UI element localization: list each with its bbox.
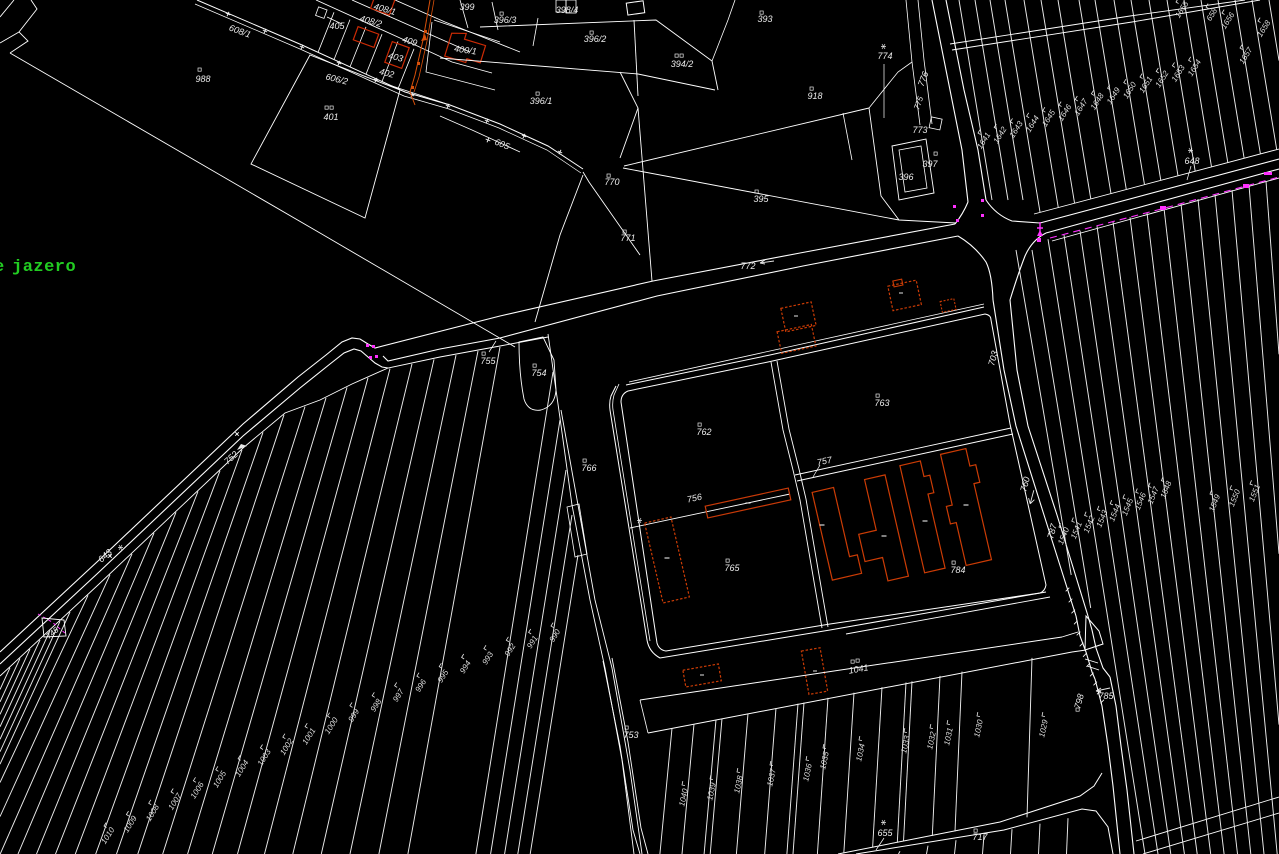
svg-text:397: 397 (922, 159, 938, 169)
svg-text:771: 771 (620, 233, 635, 243)
svg-text:773: 773 (912, 125, 927, 135)
svg-text:396/1: 396/1 (530, 96, 553, 106)
svg-text:399: 399 (459, 2, 474, 12)
svg-text:785: 785 (1098, 691, 1114, 701)
svg-text:918: 918 (807, 91, 822, 101)
svg-text:396/2: 396/2 (584, 34, 607, 44)
svg-text:396: 396 (898, 172, 913, 182)
svg-text:762: 762 (696, 427, 711, 437)
svg-text:772: 772 (740, 261, 755, 271)
svg-text:394/2: 394/2 (671, 59, 694, 69)
svg-text:717: 717 (972, 832, 988, 842)
svg-text:jazero: jazero (12, 258, 76, 277)
svg-text:988: 988 (195, 74, 210, 84)
svg-text:e: e (0, 258, 4, 277)
svg-text:405: 405 (329, 21, 345, 31)
svg-text:648: 648 (1184, 156, 1199, 166)
svg-text:774: 774 (877, 51, 892, 61)
svg-text:655: 655 (877, 828, 893, 838)
svg-text:763: 763 (874, 398, 889, 408)
svg-text:396/3: 396/3 (494, 15, 517, 25)
svg-text:784: 784 (950, 565, 965, 575)
svg-text:395: 395 (753, 194, 769, 204)
svg-text:393: 393 (757, 14, 772, 24)
svg-text:755: 755 (480, 356, 496, 366)
svg-text:398/4: 398/4 (556, 5, 579, 15)
svg-text:766: 766 (581, 463, 596, 473)
svg-text:765: 765 (724, 563, 740, 573)
svg-text:401: 401 (323, 112, 338, 122)
svg-text:754: 754 (531, 368, 546, 378)
svg-text:753: 753 (623, 730, 638, 740)
svg-text:770: 770 (604, 177, 619, 187)
